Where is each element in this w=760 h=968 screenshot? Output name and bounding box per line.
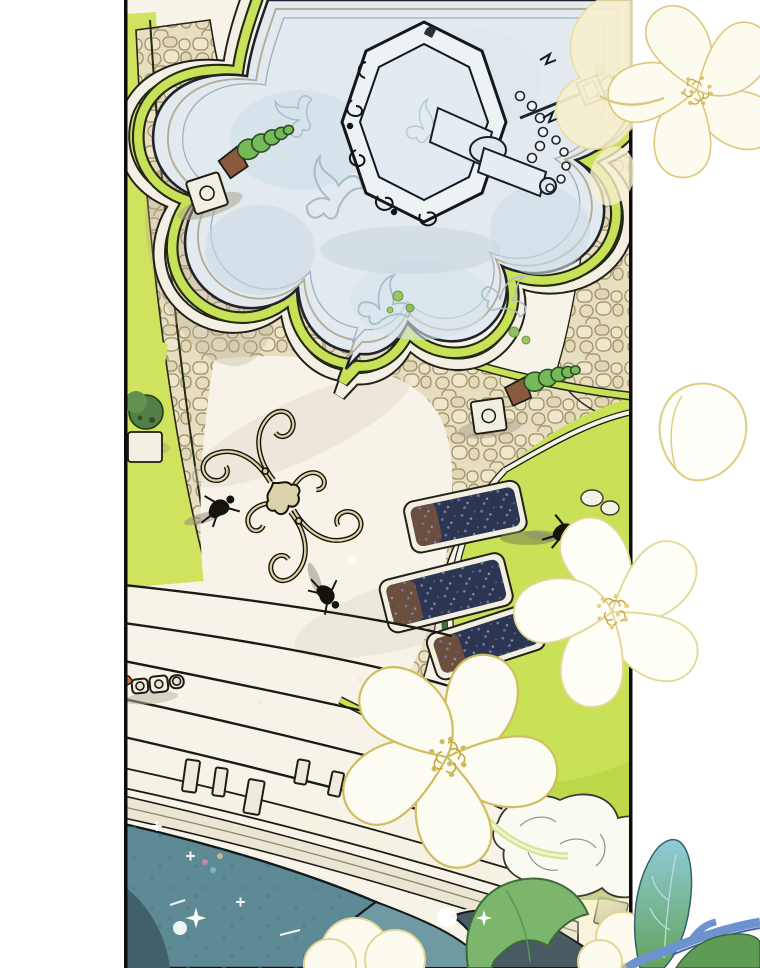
basin-shadow: [320, 226, 500, 274]
overlay-petal: [660, 384, 747, 481]
panel-border-left: [124, 0, 128, 968]
panel-artwork: [0, 0, 760, 968]
white-stone-2: [601, 501, 619, 515]
panel-border-right: [629, 0, 633, 968]
bokeh-dot-1: [437, 907, 457, 927]
bokeh-dot-2: [173, 921, 187, 935]
white-stone-1: [581, 490, 603, 506]
garden-aerial-scene: [0, 0, 760, 968]
